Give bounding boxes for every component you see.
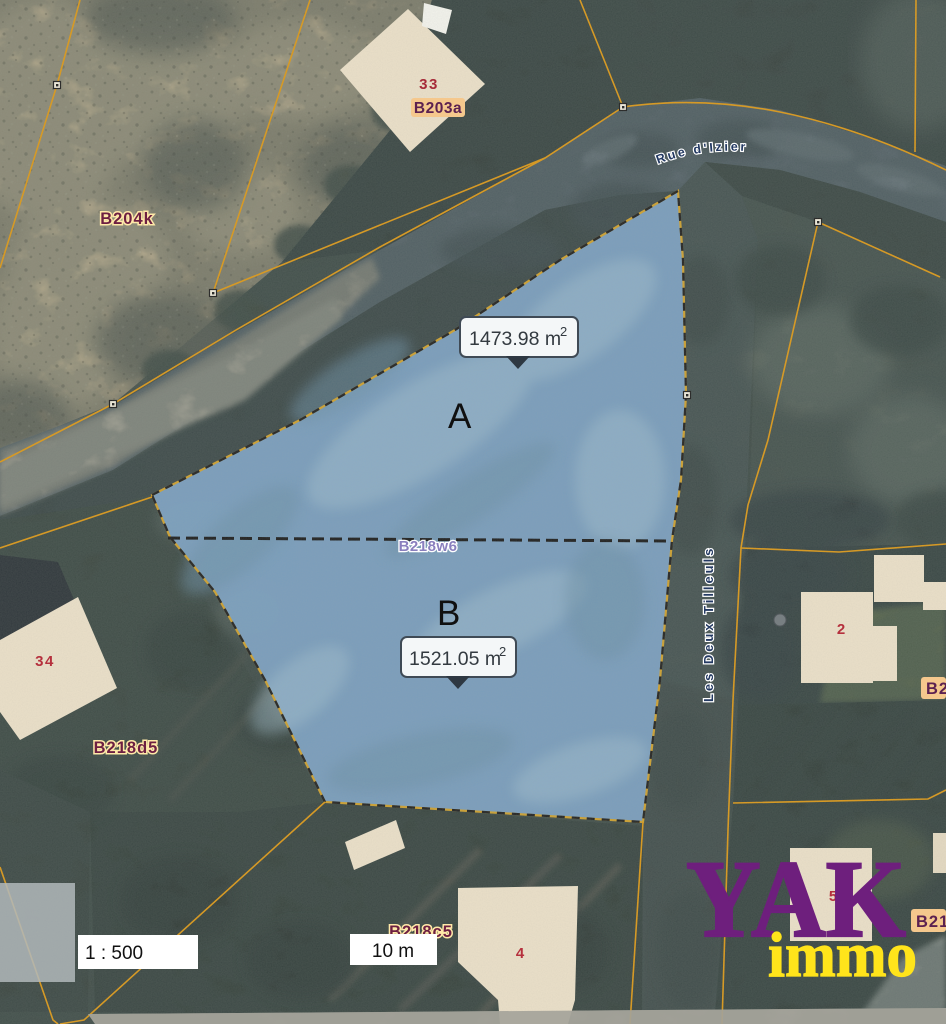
svg-text:A: A — [448, 397, 472, 436]
svg-text:B203a: B203a — [414, 100, 462, 117]
svg-text:34: 34 — [35, 653, 55, 670]
svg-text:B2: B2 — [926, 680, 946, 698]
svg-text:2: 2 — [499, 644, 506, 659]
svg-text:2: 2 — [837, 621, 845, 638]
svg-text:33: 33 — [419, 76, 439, 93]
svg-text:1521.05 m: 1521.05 m — [409, 648, 501, 670]
svg-text:immo: immo — [768, 919, 917, 990]
svg-text:B218d5: B218d5 — [94, 739, 159, 757]
svg-text:B218w6: B218w6 — [399, 538, 458, 555]
svg-text:10 m: 10 m — [372, 941, 414, 962]
svg-text:B: B — [437, 594, 460, 633]
svg-text:B204k: B204k — [100, 210, 154, 228]
svg-text:1473.98 m: 1473.98 m — [469, 328, 561, 350]
svg-text:2: 2 — [560, 324, 567, 339]
svg-text:Les Deux Tilleuls: Les Deux Tilleuls — [701, 547, 716, 702]
svg-text:4: 4 — [516, 945, 525, 962]
svg-text:B21: B21 — [916, 913, 946, 931]
svg-text:1 : 500: 1 : 500 — [85, 943, 143, 964]
